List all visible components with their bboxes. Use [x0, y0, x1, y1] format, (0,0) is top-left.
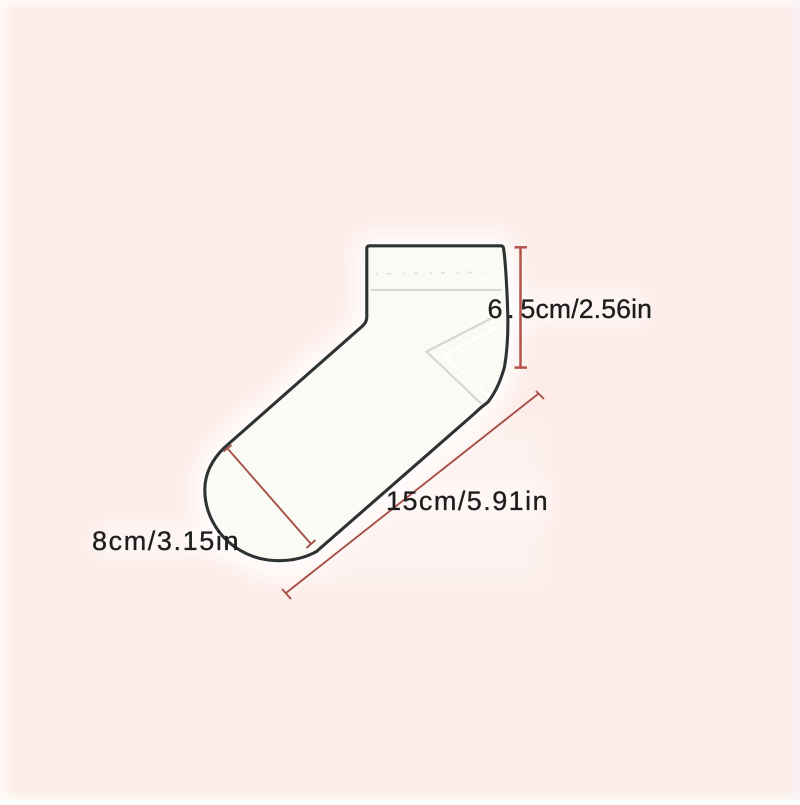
svg-text:15cm/5.91in: 15cm/5.91in: [386, 486, 549, 516]
svg-text:8cm/3.15in: 8cm/3.15in: [92, 526, 240, 556]
svg-text:5cm/2.56in: 5cm/2.56in: [521, 294, 653, 324]
svg-text:6: 6: [488, 294, 503, 324]
svg-text:.: .: [507, 294, 515, 324]
